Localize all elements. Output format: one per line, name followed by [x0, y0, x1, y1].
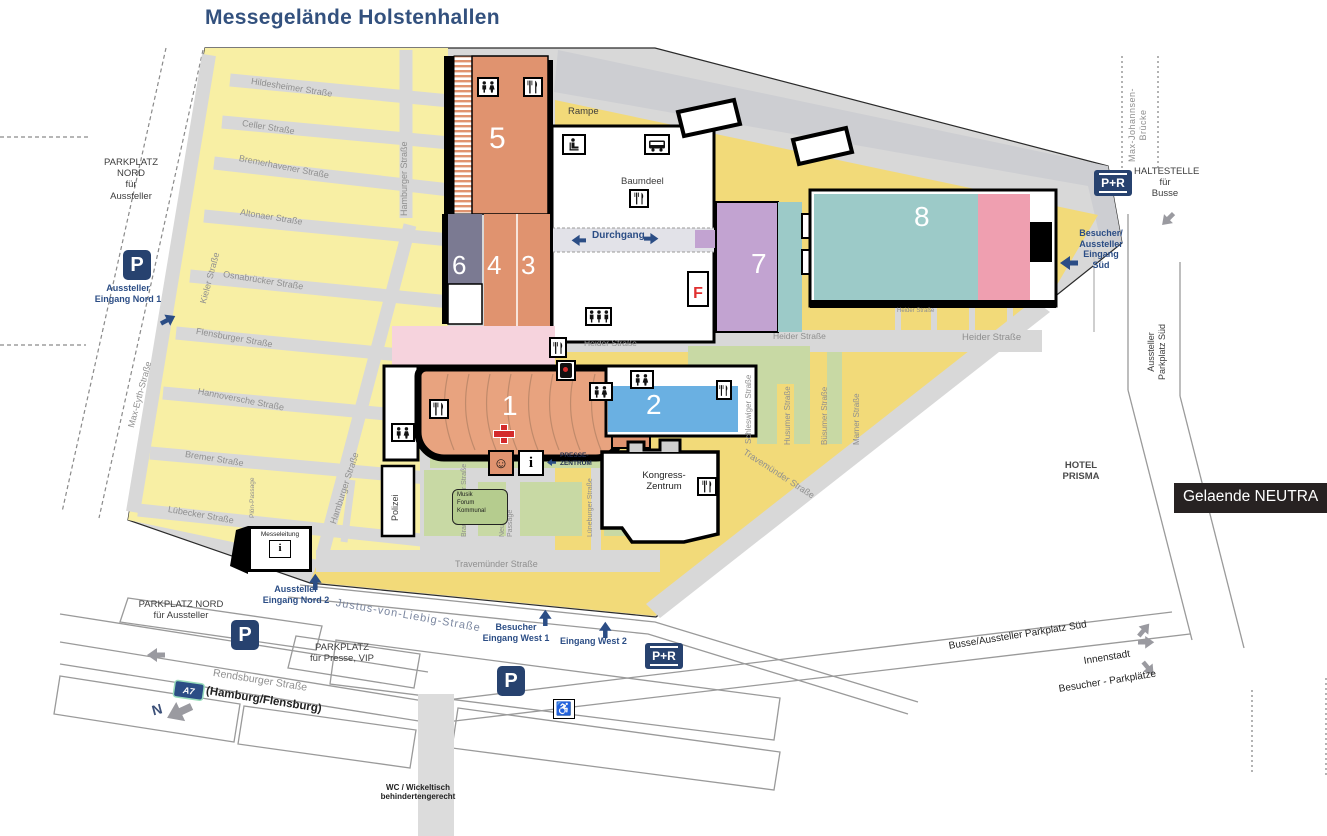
entrance-label-nord1: Aussteller Eingang Nord 1: [86, 283, 170, 304]
building-label-polizei: Polizei: [390, 494, 401, 521]
hall-number-5: 5: [489, 122, 506, 156]
restaurant-icon: [697, 477, 717, 496]
parking-label-presse-vip: PARKPLATZ für Presse, VIP: [296, 642, 388, 664]
poi-label-hotel-prisma: HOTEL PRISMA: [1052, 460, 1110, 482]
hall-number-2: 2: [646, 389, 662, 421]
info-icon: i: [269, 540, 291, 558]
street-label-max-johannsen: Max-Johannsen- Brücke: [1127, 88, 1148, 162]
building-label-kongress-zentrum: Kongress- Zentrum: [634, 470, 694, 492]
entrance-label-nord2: Aussteller Eingang Nord 2: [254, 584, 338, 605]
park-and-ride-sign: P+R: [1094, 170, 1132, 196]
restaurant-icon: [429, 399, 449, 419]
street-label-heider-3: Heider Straße: [962, 332, 1021, 343]
hall-number-1: 1: [502, 390, 518, 422]
entrance-label-sued: Besucher/ Aussteller Eingang Süd: [1078, 228, 1124, 270]
wc-icon: [630, 370, 654, 389]
fire-hydrant-sign: F: [687, 271, 709, 307]
parking-sign: P: [497, 666, 525, 696]
building-label-messeleitung: Messeleitung: [251, 531, 309, 538]
parking-label-aussteller-sued: Aussteller Parkplatz Süd: [1146, 324, 1167, 380]
messeleitung-box: Messeleitung i: [248, 526, 312, 572]
parking-sign: P: [123, 250, 151, 280]
area-label-rampe: Rampe: [568, 106, 599, 117]
fire-extinguisher-icon: [556, 360, 576, 381]
hall-number-7: 7: [751, 248, 767, 280]
parking-label-nord-top: PARKPLATZ NORD für Aussteller: [96, 157, 166, 202]
street-label-buesumer: Büsumer Straße: [820, 387, 829, 445]
restaurant-icon: [523, 77, 543, 97]
street-label-schleswiger: Schleswiger Straße: [744, 375, 753, 444]
info-icon: i: [518, 450, 544, 476]
restaurant-icon: [629, 189, 649, 208]
cloakroom-icon: [562, 134, 586, 155]
building-label-musik-forum: Musik Forum Kommunal: [452, 489, 508, 525]
parking-sign: P: [231, 620, 259, 650]
street-label-lueneburger: Lüneburger Straße: [587, 478, 595, 537]
page-title: Messegelände Holstenhallen: [205, 6, 500, 30]
restaurant-icon: [716, 380, 732, 400]
wc-icon: [391, 423, 415, 442]
bus-icon: [644, 134, 670, 155]
overlay-label-gelaende[interactable]: Gelaende NEUTRA: [1174, 483, 1327, 513]
label-durchgang: Durchgang: [592, 230, 645, 242]
building-label-presse-zentrum: PRESSE- ZENTRUM: [560, 452, 592, 467]
site-map: Messegelände Holstenhallen Hildesheimer …: [0, 0, 1327, 836]
wheelchair-icon: ♿: [553, 699, 575, 719]
street-label-travemuender: Travemünder Straße: [455, 559, 538, 570]
street-label-heider-2: Heider Straße: [773, 331, 826, 341]
group-icon: [585, 307, 612, 326]
parking-label-nord-bottom: PARKPLATZ NORD für Aussteller: [126, 599, 236, 621]
hall-number-3: 3: [521, 250, 535, 281]
south-access-road: [418, 694, 454, 836]
entrance-label-west2: Eingang West 2: [560, 636, 627, 647]
street-label-heider-1: Heider Straße: [584, 338, 637, 348]
street-label-heider-small: Heider Straße: [897, 308, 934, 315]
entrance-label-west1: Besucher Eingang West 1: [474, 622, 558, 643]
note-wc-wickeltisch: WC / Wickeltisch behindertengerecht: [356, 783, 480, 802]
wc-icon: [477, 77, 499, 97]
wc-icon: [589, 382, 613, 401]
street-label-marner: Marner Straße: [852, 393, 861, 445]
first-aid-icon: [492, 424, 514, 444]
street-label-ploen-passage: Plön-Passage: [249, 478, 257, 518]
park-and-ride-sign: P+R: [645, 643, 683, 669]
street-label-husumer: Husumer Straße: [783, 386, 792, 445]
restaurant-icon: [549, 337, 567, 358]
hall-number-6: 6: [452, 250, 466, 281]
hall-number-4: 4: [487, 250, 501, 281]
street-label-hamburger-north: Hamburger Straße: [399, 141, 410, 216]
building-label-baumdeel: Baumdeel: [621, 176, 664, 187]
transit-label-haltestelle: HALTESTELLE für Busse: [1134, 166, 1196, 200]
hall-number-8: 8: [914, 201, 930, 233]
smiley-icon: ☺: [488, 450, 514, 476]
